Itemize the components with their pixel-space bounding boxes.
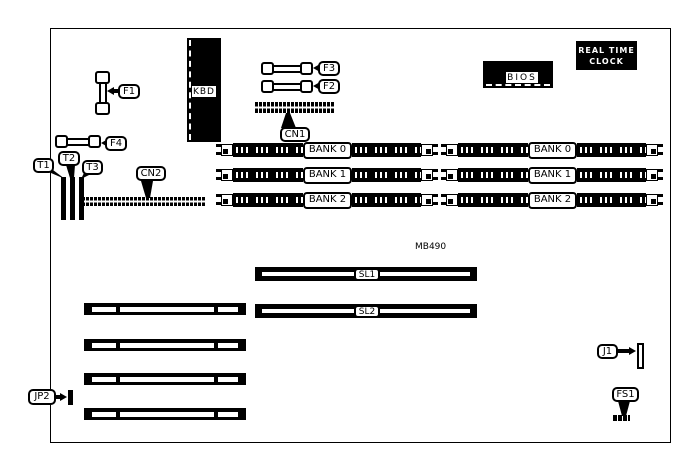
callout-sl1: SL1: [354, 268, 380, 281]
callout-pointers: [0, 0, 692, 456]
cn1-tail: [281, 113, 296, 128]
callout-j1: J1: [597, 344, 618, 359]
cn2-tail: [141, 181, 153, 198]
callout-t2: T2: [58, 151, 80, 166]
callout-f3: F3: [318, 61, 340, 76]
t2-tail: [66, 165, 75, 178]
callout-cn2: CN2: [136, 166, 166, 181]
callout-jp2: JP2: [28, 389, 56, 405]
j1-arrow: [616, 347, 636, 355]
callout-f4: F4: [105, 136, 127, 151]
fs1-tail: [618, 401, 630, 416]
callout-t1: T1: [33, 158, 54, 173]
bios-label: BIOS: [505, 71, 539, 84]
kbd-label: KBD: [191, 85, 217, 98]
callout-f1: F1: [118, 84, 140, 99]
callout-sl2: SL2: [354, 305, 380, 318]
callout-fs1: FS1: [612, 387, 639, 402]
callout-cn1: CN1: [280, 127, 310, 142]
callout-f2: F2: [318, 79, 340, 94]
motherboard-diagram: KBD F1 F3 F2 F4 CN1 CN2 T1 T2 T3: [0, 0, 692, 456]
callout-t3: T3: [82, 160, 103, 175]
